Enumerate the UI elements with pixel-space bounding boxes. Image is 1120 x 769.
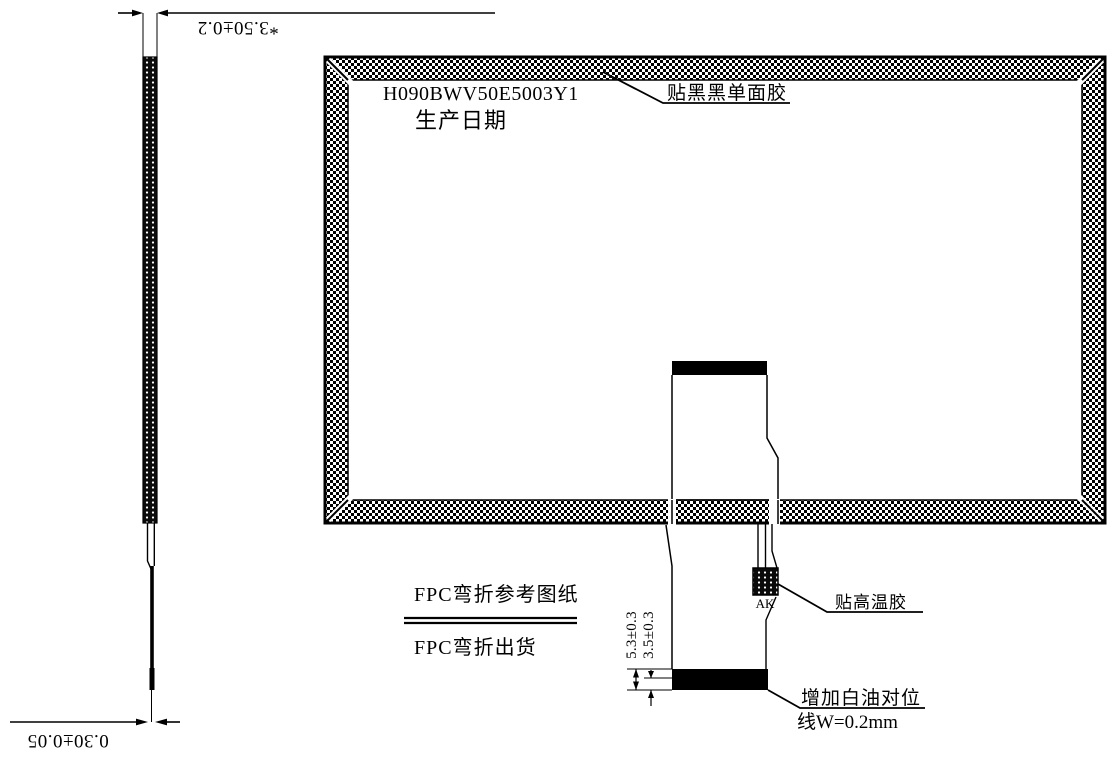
stiffener-dimensions: 5.3±0.3 3.5±0.3 xyxy=(624,611,672,706)
white-oil-note-line1-label: 增加白油对位 xyxy=(801,687,921,709)
dim-stiffener-bar-label: 3.5±0.3 xyxy=(641,611,657,659)
dim-stiffener-total-label: 5.3±0.3 xyxy=(624,611,640,659)
side-view-panel-strip xyxy=(143,57,157,523)
engineering-drawing-page: *3.50±0.2 0.30±0.05 xyxy=(0,0,1120,769)
arrowhead-right-icon xyxy=(136,719,148,726)
fpc-left-edge xyxy=(666,525,672,669)
lcd-module-drawing: *3.50±0.2 0.30±0.05 xyxy=(0,0,1120,769)
fpc-top-stiffener-bar xyxy=(672,361,767,375)
high-temp-tape-note-label: 贴高温胶 xyxy=(835,593,907,612)
arrowhead-right-icon xyxy=(132,10,143,17)
black-tape-note-label: 贴黑黑单面胶 xyxy=(667,82,787,104)
arrowhead-down-icon xyxy=(633,682,639,691)
arrowhead-left-icon xyxy=(157,10,168,17)
arrowhead-left-icon xyxy=(155,719,167,726)
arrowhead-down-icon xyxy=(648,671,654,678)
high-temp-tape-callout: 贴高温胶 xyxy=(778,584,923,612)
dim-total-thickness-label: *3.50±0.2 xyxy=(197,17,278,38)
fpc-bend-reference-label: FPC弯折参考图纸 xyxy=(414,583,579,606)
front-view: H090BWV50E5003Y1 生产日期 贴黑黑单面胶 xyxy=(325,57,1105,526)
side-view-fpc-tail xyxy=(148,523,155,722)
high-temp-tape-pad xyxy=(753,568,778,595)
active-area-outline xyxy=(348,80,1082,500)
arrowhead-up-icon xyxy=(648,690,654,698)
white-oil-note-line2-label: 线W=0.2mm xyxy=(797,711,898,733)
fpc-note-block: FPC弯折参考图纸 FPC弯折出货 xyxy=(404,583,579,659)
fpc-bend-shipping-label: FPC弯折出货 xyxy=(414,636,537,659)
dimension-total-thickness: *3.50±0.2 xyxy=(118,10,495,57)
white-oil-callout: 增加白油对位 线W=0.2mm xyxy=(768,687,925,733)
ak-marking-label: AK xyxy=(756,596,775,611)
fpc-fold-down: AK 5.3±0.3 3.5±0.3 贴高温胶 增加白油对位 xyxy=(624,524,925,733)
arrowhead-up-icon xyxy=(633,669,639,678)
part-number-label: H090BWV50E5003Y1 xyxy=(383,83,579,105)
dimension-fpc-thickness: 0.30±0.05 xyxy=(10,719,180,751)
production-date-label: 生产日期 xyxy=(415,108,507,133)
fpc-bottom-stiffener-bar xyxy=(672,669,768,690)
dim-fpc-thickness-label: 0.30±0.05 xyxy=(27,730,108,751)
